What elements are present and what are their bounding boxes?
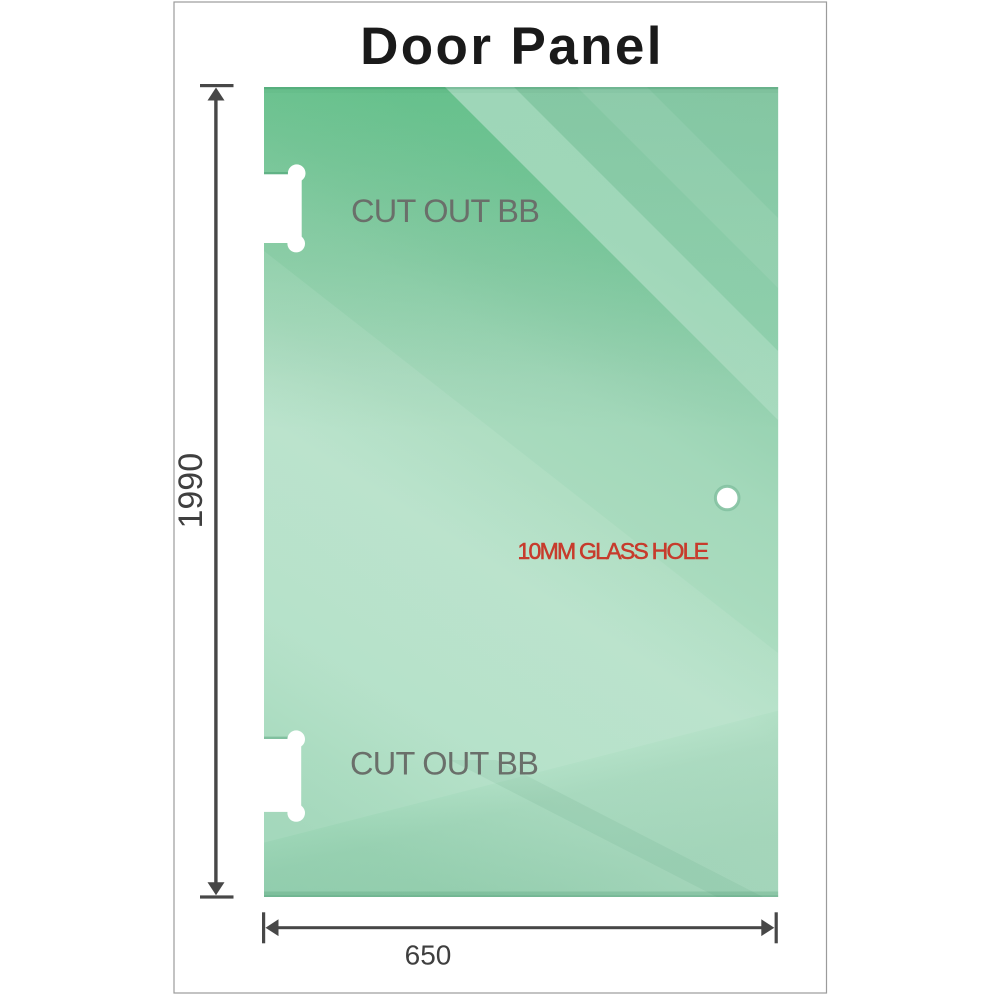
svg-text:CUT OUT BB: CUT OUT BB (351, 193, 539, 229)
svg-text:650: 650 (405, 940, 452, 971)
svg-text:CUT OUT BB: CUT OUT BB (350, 745, 538, 781)
svg-text:Door Panel: Door Panel (360, 17, 664, 76)
svg-text:10MM GLASS HOLE: 10MM GLASS HOLE (518, 538, 709, 564)
svg-text:1990: 1990 (172, 453, 210, 529)
